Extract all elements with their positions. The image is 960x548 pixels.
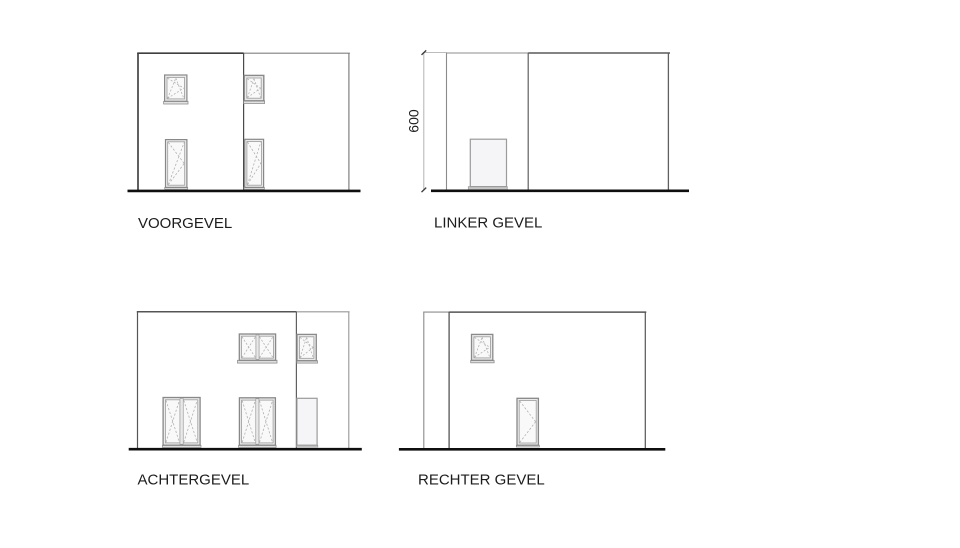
svg-text:RECHTER GEVEL: RECHTER GEVEL xyxy=(418,472,545,489)
svg-text:LINKER GEVEL: LINKER GEVEL xyxy=(434,215,542,232)
svg-text:VOORGEVEL: VOORGEVEL xyxy=(138,215,232,232)
svg-text:600: 600 xyxy=(405,109,421,133)
svg-text:ACHTERGEVEL: ACHTERGEVEL xyxy=(138,472,250,489)
